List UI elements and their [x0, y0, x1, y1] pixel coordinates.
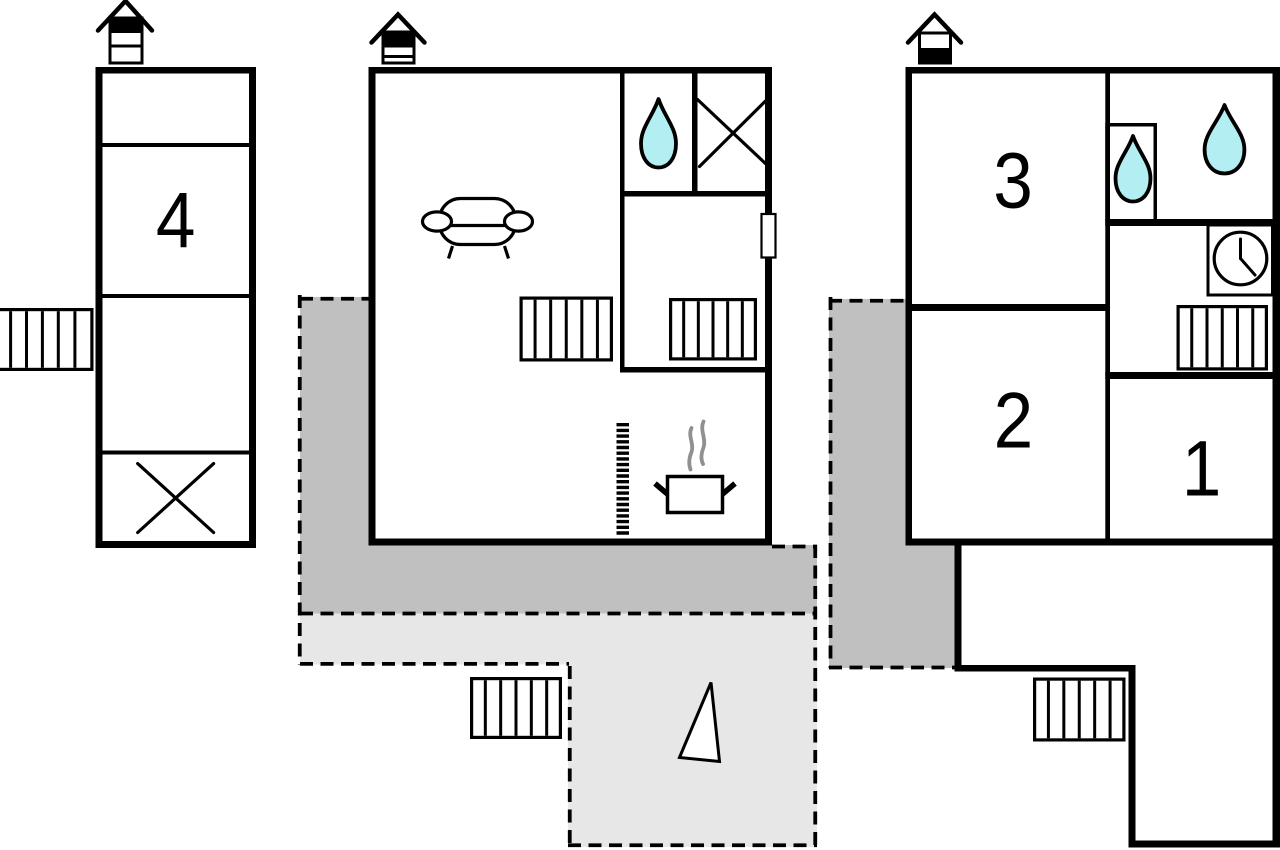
- svg-text:3: 3: [993, 136, 1033, 224]
- svg-text:1: 1: [1182, 424, 1222, 512]
- svg-text:4: 4: [156, 176, 196, 264]
- svg-text:2: 2: [994, 376, 1034, 464]
